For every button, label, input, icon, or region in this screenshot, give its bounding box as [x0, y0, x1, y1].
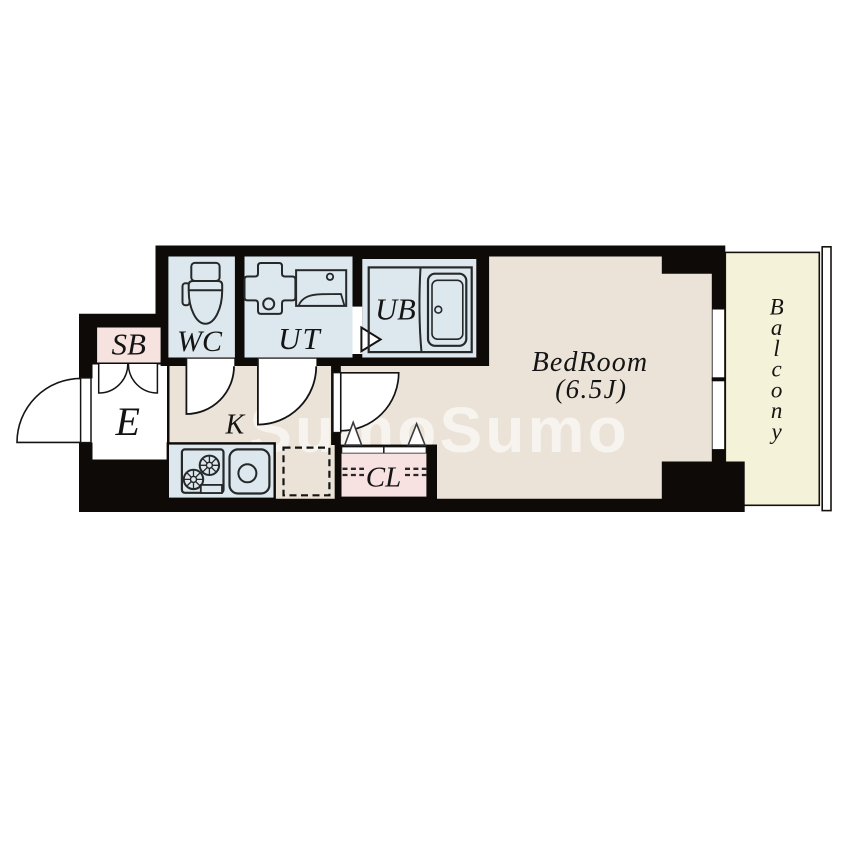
- svg-text:K: K: [224, 410, 245, 441]
- svg-text:SumoSumo: SumoSumo: [249, 394, 630, 466]
- svg-text:y: y: [769, 419, 782, 444]
- svg-text:E: E: [114, 399, 139, 444]
- svg-text:CL: CL: [366, 462, 401, 494]
- svg-text:(6.5J): (6.5J): [555, 374, 627, 404]
- svg-text:UT: UT: [278, 321, 322, 356]
- svg-text:SB: SB: [111, 327, 146, 362]
- svg-text:WC: WC: [177, 325, 223, 358]
- svg-text:UB: UB: [375, 293, 416, 327]
